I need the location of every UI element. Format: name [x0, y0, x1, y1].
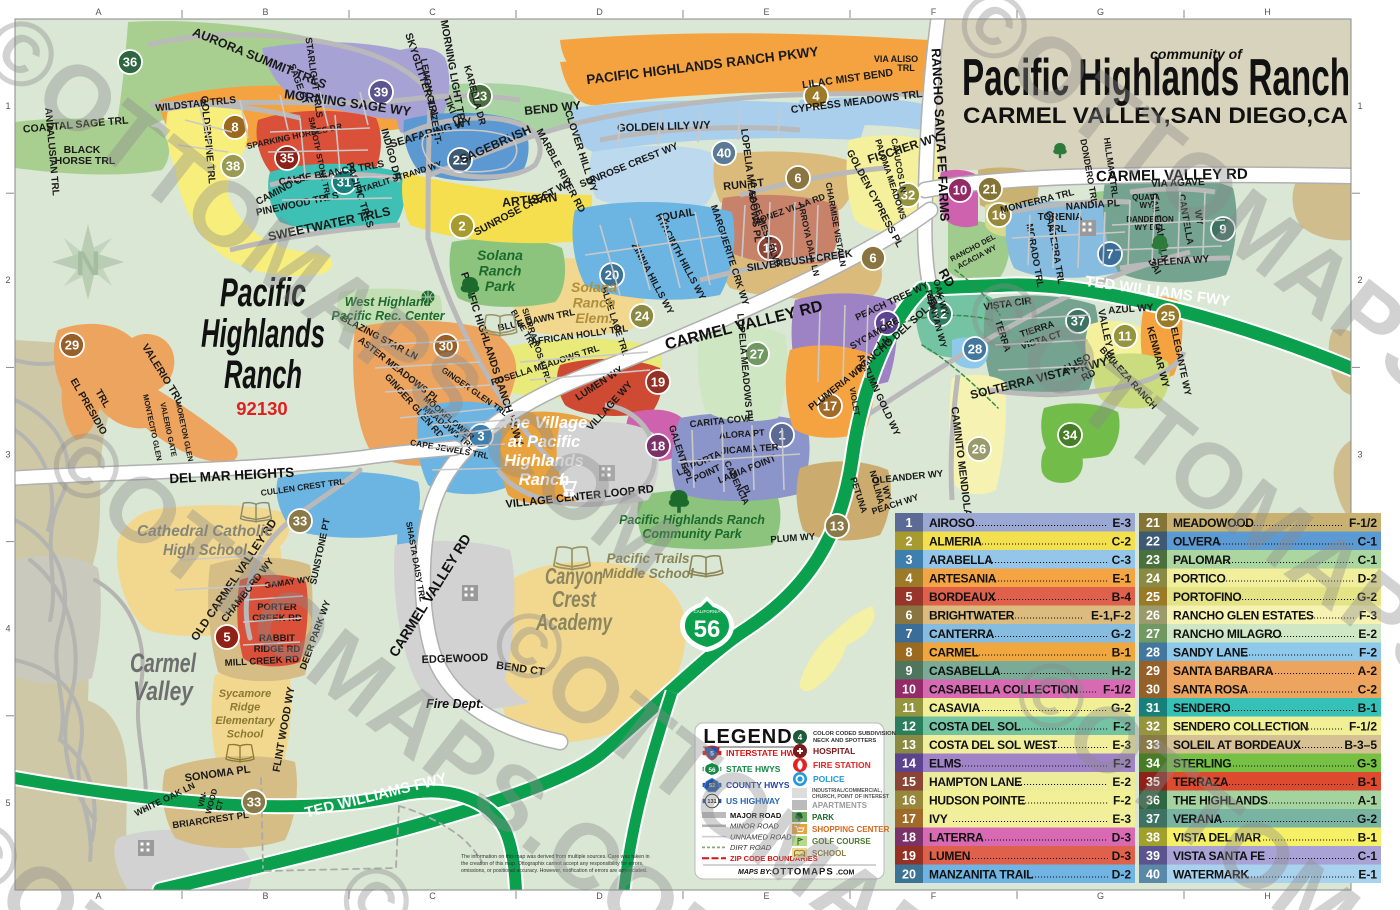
svg-text:3: 3 [5, 449, 10, 459]
svg-text:26: 26 [972, 442, 986, 457]
svg-text:D-2: D-2 [1112, 868, 1132, 882]
svg-text:12: 12 [902, 720, 916, 734]
svg-text:G: G [1097, 7, 1104, 17]
svg-text:26: 26 [1146, 609, 1160, 623]
svg-text:SANDY LANE: SANDY LANE [1173, 646, 1248, 660]
svg-text:10: 10 [902, 683, 916, 697]
svg-text:HOSPITAL: HOSPITAL [813, 746, 855, 756]
svg-text:Ranch: Ranch [479, 263, 522, 279]
svg-text:D-3: D-3 [1112, 849, 1132, 863]
svg-text:39: 39 [1146, 849, 1160, 863]
svg-text:HUDSON POINTE: HUDSON POINTE [929, 794, 1025, 808]
svg-text:B-1: B-1 [1112, 646, 1132, 660]
svg-text:19: 19 [651, 375, 665, 390]
svg-text:7: 7 [906, 627, 913, 641]
svg-text:C-3: C-3 [1112, 553, 1132, 567]
svg-text:A: A [95, 7, 101, 17]
svg-text:D-3: D-3 [1112, 831, 1132, 845]
svg-text:7: 7 [1106, 247, 1113, 262]
svg-text:22: 22 [1146, 535, 1160, 549]
svg-text:8: 8 [906, 646, 913, 660]
svg-text:Solana: Solana [477, 247, 523, 263]
svg-text:ELMS: ELMS [929, 757, 961, 771]
svg-text:13: 13 [830, 519, 844, 534]
svg-text:G-3: G-3 [1357, 757, 1377, 771]
svg-text:11: 11 [1118, 329, 1132, 344]
svg-text:4: 4 [798, 733, 803, 742]
svg-text:6: 6 [794, 171, 801, 186]
svg-text:SENDERO COLLECTION: SENDERO COLLECTION [1173, 720, 1308, 734]
svg-text:21: 21 [1146, 516, 1160, 530]
svg-text:CALIFORNIA: CALIFORNIA [693, 609, 720, 614]
svg-text:G-2: G-2 [1111, 627, 1131, 641]
svg-text:33: 33 [293, 514, 307, 529]
svg-text:NECK AND SPOTTERS: NECK AND SPOTTERS [813, 738, 876, 744]
svg-text:6: 6 [906, 609, 913, 623]
svg-text:92130: 92130 [236, 398, 287, 419]
svg-text:23: 23 [1146, 553, 1160, 567]
svg-text:28: 28 [1146, 646, 1160, 660]
svg-text:LATERRA: LATERRA [929, 831, 984, 845]
svg-text:5: 5 [906, 590, 913, 604]
svg-text:2: 2 [458, 219, 465, 234]
svg-text:5: 5 [5, 798, 10, 808]
svg-text:IVY: IVY [929, 812, 948, 826]
svg-text:C-1: C-1 [1358, 849, 1378, 863]
svg-text:Carmel: Carmel [130, 648, 196, 678]
svg-text:B-3–5: B-3–5 [1344, 738, 1377, 752]
svg-text:FIRE STATION: FIRE STATION [813, 760, 871, 770]
svg-text:3: 3 [906, 553, 913, 567]
svg-text:14: 14 [902, 757, 916, 771]
svg-text:SANTA BARBARA: SANTA BARBARA [1173, 664, 1274, 678]
svg-text:15: 15 [902, 775, 916, 789]
svg-text:ARABELLA: ARABELLA [929, 553, 993, 567]
svg-text:Valley: Valley [133, 676, 195, 706]
svg-text:ALMERIA: ALMERIA [929, 535, 982, 549]
svg-text:C-2: C-2 [1112, 535, 1132, 549]
svg-text:CARMEL: CARMEL [929, 646, 979, 660]
svg-text:25: 25 [1146, 590, 1160, 604]
svg-text:B-4: B-4 [1112, 590, 1132, 604]
svg-text:27: 27 [1146, 627, 1160, 641]
svg-text:C: C [429, 7, 436, 17]
svg-text:17: 17 [902, 812, 916, 826]
svg-text:21: 21 [983, 182, 997, 197]
svg-text:36: 36 [123, 55, 137, 70]
svg-text:25: 25 [1161, 309, 1175, 324]
svg-text:A-1: A-1 [1358, 794, 1378, 808]
svg-text:13: 13 [902, 738, 916, 752]
svg-text:PORTOFINO: PORTOFINO [1173, 590, 1241, 604]
svg-text:40: 40 [717, 146, 731, 161]
svg-text:E: E [763, 7, 769, 17]
svg-text:PALOMAR: PALOMAR [1173, 553, 1231, 567]
svg-text:4: 4 [5, 624, 10, 634]
svg-text:ARTESANIA: ARTESANIA [929, 572, 997, 586]
svg-text:RANCHO GLEN ESTATES: RANCHO GLEN ESTATES [1173, 609, 1314, 623]
svg-text:PORTICO: PORTICO [1173, 572, 1226, 586]
svg-text:35: 35 [280, 151, 294, 166]
svg-text:24: 24 [635, 309, 650, 324]
svg-text:CHURCH, POINT OF INTEREST: CHURCH, POINT OF INTEREST [812, 794, 890, 800]
svg-text:CANTERRA: CANTERRA [929, 627, 995, 641]
svg-text:BORDEAUX: BORDEAUX [929, 590, 996, 604]
svg-text:24: 24 [1146, 572, 1160, 586]
svg-text:C-2: C-2 [1358, 683, 1378, 697]
svg-text:LUMEN: LUMEN [929, 849, 970, 863]
svg-text:1: 1 [906, 516, 913, 530]
svg-text:3: 3 [1357, 449, 1362, 459]
svg-text:Ranch: Ranch [573, 295, 616, 311]
svg-text:POLICE: POLICE [813, 774, 845, 784]
svg-text:2: 2 [5, 275, 10, 285]
svg-text:Park: Park [485, 278, 517, 294]
svg-text:Ranch: Ranch [224, 353, 302, 397]
svg-text:18: 18 [651, 439, 665, 454]
svg-text:8: 8 [231, 120, 238, 135]
svg-text:H: H [1264, 7, 1271, 17]
svg-text:BRIGHTWATER: BRIGHTWATER [929, 609, 1015, 623]
svg-text:COLOR CODED SUBDIVISION: COLOR CODED SUBDIVISION [813, 731, 896, 737]
svg-text:29: 29 [65, 338, 79, 353]
svg-text:E-3: E-3 [1112, 516, 1131, 530]
svg-text:10: 10 [953, 183, 967, 198]
svg-text:B-1: B-1 [1358, 775, 1378, 789]
svg-text:SENDERO: SENDERO [1173, 701, 1230, 715]
svg-text:4: 4 [906, 572, 913, 586]
svg-text:H-2: H-2 [1112, 664, 1132, 678]
svg-text:56: 56 [694, 616, 721, 643]
svg-text:9: 9 [906, 664, 913, 678]
svg-text:Solana: Solana [571, 279, 617, 295]
svg-text:2: 2 [906, 535, 913, 549]
svg-text:1: 1 [1357, 101, 1362, 111]
svg-text:39: 39 [374, 85, 388, 100]
svg-text:B: B [262, 7, 268, 17]
svg-text:Ridge: Ridge [230, 702, 261, 714]
svg-text:RANCHO MILAGRO: RANCHO MILAGRO [1173, 627, 1281, 641]
svg-text:SANTA ROSA: SANTA ROSA [1173, 683, 1249, 697]
svg-text:HAMPTON LANE: HAMPTON LANE [929, 775, 1022, 789]
svg-text:F: F [931, 7, 937, 17]
svg-text:CASAVIA: CASAVIA [929, 701, 981, 715]
svg-text:G-2: G-2 [1357, 812, 1377, 826]
svg-text:6: 6 [869, 251, 876, 266]
svg-text:F-1/2: F-1/2 [1349, 720, 1377, 734]
svg-text:School: School [227, 729, 265, 741]
svg-text:MANZANITA TRAIL: MANZANITA TRAIL [929, 868, 1033, 882]
svg-text:D: D [596, 7, 603, 17]
svg-text:AIROSO: AIROSO [929, 516, 975, 530]
svg-text:18: 18 [902, 831, 916, 845]
svg-text:Elementary: Elementary [215, 715, 275, 727]
svg-text:40: 40 [1146, 868, 1160, 882]
svg-text:27: 27 [750, 347, 764, 362]
svg-text:11: 11 [902, 701, 915, 715]
svg-text:29: 29 [1146, 664, 1160, 678]
svg-text:33: 33 [247, 795, 261, 810]
svg-text:B-1: B-1 [1358, 831, 1378, 845]
svg-text:E-1: E-1 [1112, 572, 1131, 586]
svg-text:B-1: B-1 [1358, 701, 1378, 715]
svg-text:TRL: TRL [897, 63, 915, 73]
svg-text:G: G [1097, 891, 1104, 901]
svg-text:Elem.: Elem. [575, 310, 612, 326]
svg-text:Sycamore: Sycamore [219, 688, 272, 700]
svg-text:N: N [76, 245, 101, 283]
svg-text:B: B [262, 891, 268, 901]
svg-text:16: 16 [902, 794, 916, 808]
svg-text:30: 30 [1146, 683, 1160, 697]
svg-text:CASABELLA: CASABELLA [929, 664, 1001, 678]
svg-text:E-1,F-2: E-1,F-2 [1091, 609, 1131, 623]
svg-text:19: 19 [902, 849, 916, 863]
